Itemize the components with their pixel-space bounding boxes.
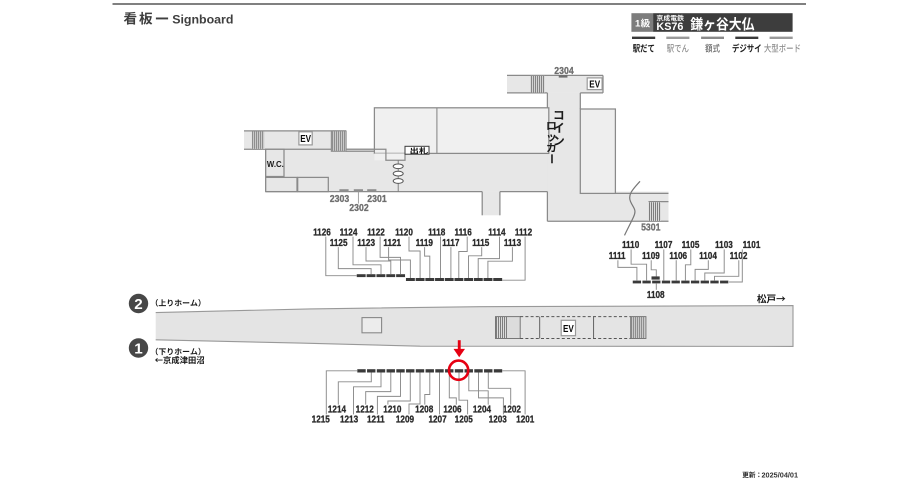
svg-text:1117: 1117 [442, 237, 459, 248]
svg-text:1116: 1116 [454, 227, 471, 238]
svg-text:1203: 1203 [489, 414, 507, 425]
svg-text:2301: 2301 [367, 194, 387, 206]
svg-text:Signboard: Signboard [172, 12, 233, 26]
svg-text:1114: 1114 [488, 227, 505, 238]
svg-text:KS76: KS76 [656, 21, 683, 33]
svg-text:EV: EV [563, 323, 575, 334]
svg-text:1125: 1125 [330, 237, 348, 248]
svg-text:1110: 1110 [622, 240, 639, 251]
svg-text:1112: 1112 [515, 227, 532, 238]
svg-text:1126: 1126 [313, 227, 331, 238]
svg-text:1101: 1101 [743, 240, 761, 251]
svg-text:W.C.: W.C. [267, 160, 284, 169]
svg-text:1115: 1115 [472, 237, 489, 248]
svg-text:1201: 1201 [516, 414, 534, 425]
svg-text:1113: 1113 [504, 237, 521, 248]
svg-text:1107: 1107 [655, 240, 673, 251]
svg-text:1: 1 [134, 341, 143, 358]
svg-text:1108: 1108 [647, 289, 665, 300]
svg-text:1123: 1123 [357, 237, 375, 248]
svg-text:1106: 1106 [669, 250, 687, 261]
svg-text:1109: 1109 [642, 250, 660, 261]
svg-text:2: 2 [134, 296, 142, 313]
svg-text:2302: 2302 [349, 202, 368, 214]
svg-text:1111: 1111 [609, 250, 626, 261]
svg-text:1121: 1121 [383, 237, 401, 248]
svg-text:1105: 1105 [682, 240, 700, 251]
svg-text:5301: 5301 [641, 222, 661, 234]
svg-text:1213: 1213 [340, 414, 358, 425]
svg-text:1104: 1104 [699, 250, 717, 261]
svg-text:EV: EV [589, 79, 601, 90]
svg-text:1124: 1124 [340, 227, 358, 238]
svg-text:1122: 1122 [367, 227, 385, 238]
svg-text:2303: 2303 [330, 194, 349, 206]
svg-text:1209: 1209 [396, 414, 414, 425]
svg-text:1215: 1215 [312, 414, 330, 425]
svg-text:1205: 1205 [455, 414, 473, 425]
svg-text:1120: 1120 [395, 227, 413, 238]
svg-text:1103: 1103 [715, 240, 733, 251]
svg-text:1207: 1207 [428, 414, 446, 425]
svg-text:1118: 1118 [428, 227, 445, 238]
svg-text:1102: 1102 [730, 250, 748, 261]
svg-text:EV: EV [300, 133, 312, 144]
svg-text:1211: 1211 [367, 414, 385, 425]
svg-text:1119: 1119 [416, 237, 433, 248]
svg-text:1: 1 [635, 19, 641, 30]
svg-text:2025/04/01: 2025/04/01 [762, 470, 799, 479]
svg-text:2304: 2304 [554, 65, 574, 77]
